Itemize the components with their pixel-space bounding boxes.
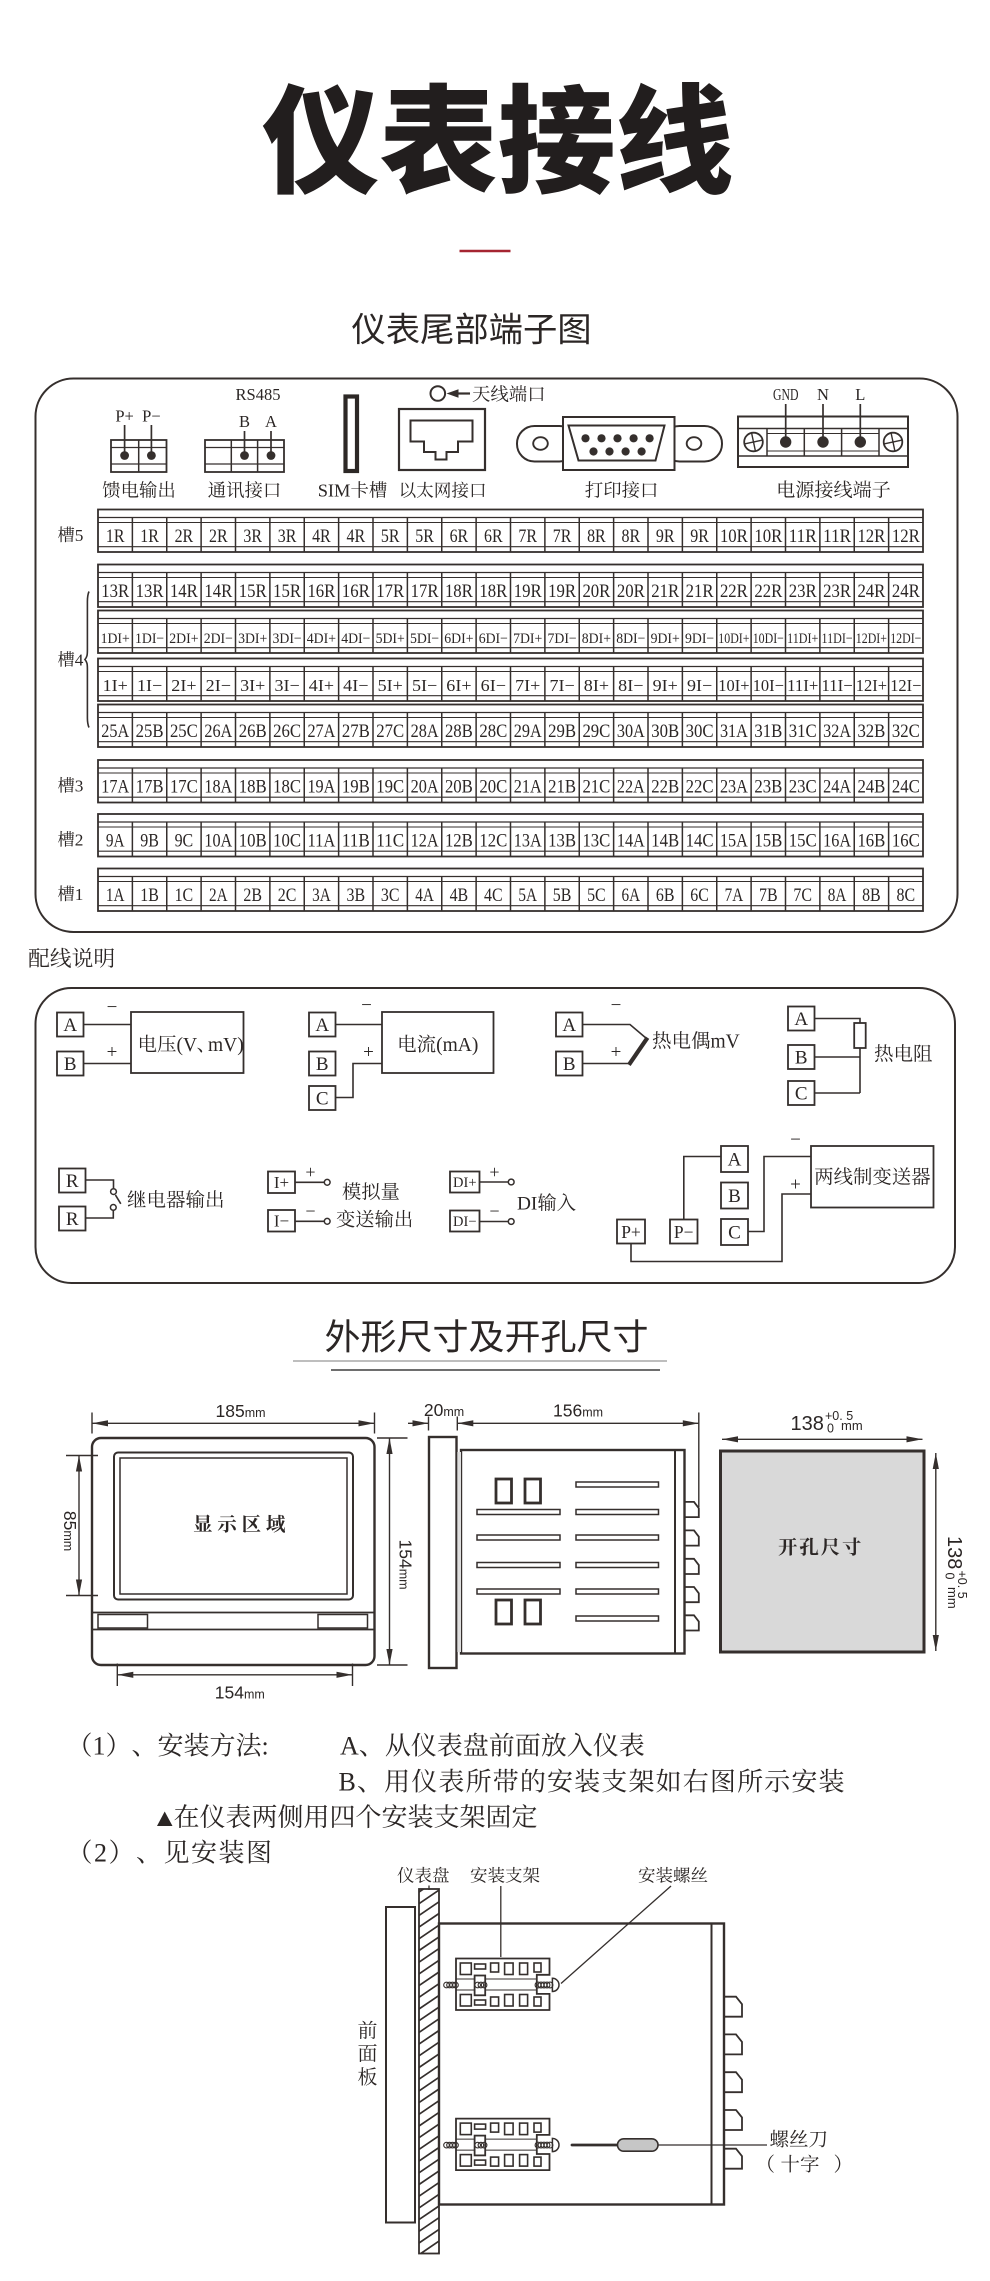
svg-text:7DI−: 7DI− (548, 631, 577, 647)
svg-text:15R: 15R (239, 582, 267, 602)
svg-text:21B: 21B (548, 778, 576, 798)
svg-text:24A: 24A (823, 778, 851, 798)
svg-text:B: B (563, 1054, 576, 1075)
svg-text:4DI−: 4DI− (341, 631, 370, 647)
svg-text:R: R (66, 1209, 79, 1230)
svg-text:19B: 19B (342, 778, 370, 798)
svg-text:1: 1 (75, 885, 84, 904)
svg-text:3DI+: 3DI+ (238, 631, 267, 647)
svg-text:10R: 10R (754, 527, 782, 547)
svg-text:N: N (817, 385, 829, 404)
svg-text:17B: 17B (136, 778, 164, 798)
svg-text:3R: 3R (278, 527, 297, 547)
svg-text:22B: 22B (651, 778, 679, 798)
svg-text:13A: 13A (514, 832, 542, 852)
svg-text:16A: 16A (823, 832, 851, 852)
svg-text:28C: 28C (479, 722, 507, 742)
svg-text:(mA): (mA) (436, 1035, 478, 1056)
svg-text:P+: P+ (621, 1222, 641, 1242)
svg-text:11R: 11R (789, 527, 818, 547)
svg-text:28B: 28B (445, 722, 473, 742)
svg-text:32C: 32C (892, 722, 920, 742)
svg-text:B: B (239, 412, 250, 431)
svg-text:2A: 2A (209, 886, 228, 906)
svg-text:1DI+: 1DI+ (101, 631, 130, 647)
svg-text:9I−: 9I− (687, 676, 712, 695)
svg-text:1I+: 1I+ (103, 676, 128, 695)
svg-text:23A: 23A (720, 778, 748, 798)
svg-text:16B: 16B (857, 832, 885, 852)
svg-text:4: 4 (75, 651, 84, 670)
svg-text:5B: 5B (553, 886, 572, 906)
svg-text:P+: P+ (115, 407, 133, 426)
svg-text:−: − (489, 1201, 499, 1221)
svg-text:31B: 31B (754, 722, 782, 742)
svg-text:6DI+: 6DI+ (444, 631, 473, 647)
svg-text:11DI+: 11DI+ (787, 631, 818, 647)
svg-text:31C: 31C (789, 722, 817, 742)
svg-text:5A: 5A (518, 886, 537, 906)
svg-text:1I−: 1I− (137, 676, 162, 695)
svg-text:26C: 26C (273, 722, 301, 742)
svg-text:14C: 14C (686, 832, 714, 852)
svg-text:5R: 5R (381, 527, 400, 547)
svg-text:19R: 19R (548, 582, 576, 602)
svg-text:4C: 4C (484, 886, 503, 906)
svg-text:12I+: 12I+ (856, 676, 887, 695)
svg-text:0: 0 (943, 1573, 957, 1580)
svg-text:2: 2 (75, 830, 84, 849)
svg-text:12I−: 12I− (890, 676, 921, 695)
svg-text:15R: 15R (273, 582, 301, 602)
svg-text:5I−: 5I− (412, 676, 437, 695)
svg-text:14B: 14B (651, 832, 679, 852)
svg-text:1R: 1R (140, 527, 159, 547)
svg-text:SIM: SIM (318, 481, 351, 501)
svg-text:A: A (562, 1015, 576, 1036)
svg-text:21C: 21C (582, 778, 610, 798)
svg-text:28A: 28A (411, 722, 439, 742)
svg-text:24C: 24C (892, 778, 920, 798)
svg-text:17R: 17R (376, 582, 404, 602)
svg-text:21R: 21R (651, 582, 679, 602)
svg-text:13R: 13R (136, 582, 164, 602)
svg-text:DI: DI (517, 1194, 537, 1215)
svg-text:A: A (265, 412, 277, 431)
svg-text:mm: mm (945, 1587, 960, 1609)
svg-text:10DI−: 10DI− (753, 631, 784, 647)
svg-text:4I−: 4I− (343, 676, 368, 695)
svg-text:24R: 24R (857, 582, 885, 602)
svg-text:32B: 32B (857, 722, 885, 742)
svg-text:18R: 18R (479, 582, 507, 602)
svg-text:10DI+: 10DI+ (718, 631, 749, 647)
svg-text:15A: 15A (720, 832, 748, 852)
svg-text:3A: 3A (312, 886, 331, 906)
svg-text:2DI+: 2DI+ (169, 631, 198, 647)
svg-text:7I+: 7I+ (515, 676, 540, 695)
svg-text:0: 0 (827, 1422, 834, 1436)
svg-text:B: B (795, 1048, 808, 1069)
svg-text:30B: 30B (651, 722, 679, 742)
svg-text::: : (262, 1732, 269, 1761)
svg-text:20R: 20R (617, 582, 645, 602)
svg-text:−: − (107, 997, 118, 1018)
svg-text:138: 138 (791, 1413, 824, 1435)
svg-text:29C: 29C (582, 722, 610, 742)
svg-text:29B: 29B (548, 722, 576, 742)
svg-text:A: A (340, 1732, 359, 1761)
svg-text:5R: 5R (415, 527, 434, 547)
svg-text:+: + (489, 1162, 499, 1182)
svg-text:19A: 19A (307, 778, 335, 798)
svg-text:24B: 24B (857, 778, 885, 798)
svg-text:7C: 7C (793, 886, 812, 906)
svg-text:25A: 25A (101, 722, 129, 742)
svg-text:23B: 23B (754, 778, 782, 798)
svg-text:6C: 6C (690, 886, 709, 906)
svg-text:+: + (305, 1162, 315, 1182)
svg-text:−: − (790, 1130, 801, 1151)
svg-text:19R: 19R (514, 582, 542, 602)
svg-text:10B: 10B (239, 832, 267, 852)
svg-text:9C: 9C (175, 832, 194, 852)
svg-text:20R: 20R (582, 582, 610, 602)
svg-text:30C: 30C (686, 722, 714, 742)
svg-text:18C: 18C (273, 778, 301, 798)
svg-text:1DI−: 1DI− (135, 631, 164, 647)
svg-text:29A: 29A (514, 722, 542, 742)
svg-text:+: + (363, 1042, 374, 1063)
svg-text:138: 138 (943, 1536, 965, 1569)
svg-text:23R: 23R (789, 582, 817, 602)
svg-text:23C: 23C (789, 778, 817, 798)
svg-text:2R: 2R (175, 527, 194, 547)
svg-text:−: − (361, 995, 372, 1016)
svg-text:1: 1 (93, 1732, 106, 1761)
svg-text:GND: GND (773, 385, 799, 404)
svg-text:10I+: 10I+ (718, 676, 749, 695)
svg-text:15C: 15C (789, 832, 817, 852)
svg-text:3I−: 3I− (275, 676, 300, 695)
svg-text:11I+: 11I+ (787, 676, 818, 695)
svg-text:2B: 2B (243, 886, 262, 906)
svg-text:3C: 3C (381, 886, 400, 906)
svg-text:+: + (611, 1042, 622, 1063)
svg-text:11I−: 11I− (822, 676, 853, 695)
svg-text:20B: 20B (445, 778, 473, 798)
svg-text:12R: 12R (857, 527, 885, 547)
svg-text:9B: 9B (140, 832, 159, 852)
svg-text:5DI−: 5DI− (410, 631, 439, 647)
svg-text:6I−: 6I− (481, 676, 506, 695)
svg-text:mV: mV (711, 1032, 740, 1053)
svg-text:6R: 6R (450, 527, 469, 547)
svg-text:+: + (107, 1042, 118, 1063)
svg-text:20C: 20C (479, 778, 507, 798)
svg-text:6DI−: 6DI− (479, 631, 508, 647)
svg-text:5C: 5C (587, 886, 606, 906)
svg-text:13B: 13B (548, 832, 576, 852)
svg-text:1A: 1A (106, 886, 125, 906)
svg-text:17C: 17C (170, 778, 198, 798)
svg-text:12DI+: 12DI+ (856, 631, 887, 647)
svg-text:7R: 7R (518, 527, 537, 547)
svg-text:10C: 10C (273, 832, 301, 852)
svg-text:4B: 4B (450, 886, 469, 906)
svg-text:+: + (790, 1175, 801, 1196)
svg-text:14R: 14R (170, 582, 198, 602)
svg-text:B: B (728, 1186, 741, 1207)
svg-text:3: 3 (75, 776, 84, 795)
svg-text:2: 2 (94, 1839, 109, 1868)
svg-text:8DI+: 8DI+ (582, 631, 611, 647)
svg-text:9R: 9R (656, 527, 675, 547)
svg-text:6R: 6R (484, 527, 503, 547)
svg-text:2DI−: 2DI− (204, 631, 233, 647)
svg-text:27A: 27A (307, 722, 335, 742)
svg-text:5I+: 5I+ (378, 676, 403, 695)
svg-text:9A: 9A (106, 832, 125, 852)
svg-text:7A: 7A (725, 886, 744, 906)
svg-text:DI+: DI+ (453, 1175, 476, 1191)
svg-text:5: 5 (75, 526, 84, 545)
svg-text:8DI−: 8DI− (616, 631, 645, 647)
svg-text:27C: 27C (376, 722, 404, 742)
svg-text:C: C (795, 1084, 808, 1105)
svg-text:1C: 1C (175, 886, 194, 906)
svg-text:7DI+: 7DI+ (513, 631, 542, 647)
svg-text:6A: 6A (622, 886, 641, 906)
svg-text:10R: 10R (720, 527, 748, 547)
svg-text:13R: 13R (101, 582, 129, 602)
svg-text:13C: 13C (582, 832, 610, 852)
svg-text:30A: 30A (617, 722, 645, 742)
svg-text:11DI−: 11DI− (822, 631, 853, 647)
svg-text:6B: 6B (656, 886, 675, 906)
svg-text:25B: 25B (136, 722, 164, 742)
svg-text:B: B (339, 1768, 358, 1797)
svg-text:B: B (316, 1054, 329, 1075)
svg-text:22A: 22A (617, 778, 645, 798)
svg-text:A: A (728, 1150, 742, 1171)
svg-text:3R: 3R (243, 527, 262, 547)
svg-text:8B: 8B (862, 886, 881, 906)
svg-text:mm: mm (841, 1418, 863, 1433)
svg-text:4R: 4R (312, 527, 331, 547)
svg-text:6I+: 6I+ (446, 676, 471, 695)
svg-text:1R: 1R (106, 527, 125, 547)
svg-text:5DI+: 5DI+ (376, 631, 405, 647)
svg-text:7I−: 7I− (550, 676, 575, 695)
svg-text:9R: 9R (690, 527, 709, 547)
svg-text:20A: 20A (411, 778, 439, 798)
svg-text:RS485: RS485 (236, 385, 281, 404)
svg-text:25C: 25C (170, 722, 198, 742)
svg-text:23R: 23R (823, 582, 851, 602)
svg-text:8C: 8C (897, 886, 916, 906)
svg-text:31A: 31A (720, 722, 748, 742)
svg-text:15B: 15B (754, 832, 782, 852)
svg-text:3DI−: 3DI− (273, 631, 302, 647)
svg-text:−: − (305, 1201, 315, 1221)
svg-text:C: C (728, 1223, 741, 1244)
svg-text:19C: 19C (376, 778, 404, 798)
svg-text:4A: 4A (415, 886, 434, 906)
svg-text:B: B (64, 1054, 77, 1075)
svg-text:3I+: 3I+ (240, 676, 265, 695)
svg-text:27B: 27B (342, 722, 370, 742)
svg-text:11B: 11B (342, 832, 370, 852)
svg-text:2I−: 2I− (206, 676, 231, 695)
svg-text:4R: 4R (347, 527, 366, 547)
svg-text:10A: 10A (204, 832, 232, 852)
svg-text:1B: 1B (140, 886, 159, 906)
svg-text:8I+: 8I+ (584, 676, 609, 695)
svg-text:11R: 11R (823, 527, 852, 547)
svg-text:2C: 2C (278, 886, 297, 906)
svg-text:11C: 11C (376, 832, 404, 852)
svg-text:14A: 14A (617, 832, 645, 852)
svg-text:18B: 18B (239, 778, 267, 798)
svg-text:4DI+: 4DI+ (307, 631, 336, 647)
svg-text:18R: 18R (445, 582, 473, 602)
svg-text:mV): mV) (208, 1035, 244, 1056)
svg-text:A: A (63, 1015, 77, 1036)
svg-text:8R: 8R (622, 527, 641, 547)
svg-text:16R: 16R (307, 582, 335, 602)
svg-text:12A: 12A (411, 832, 439, 852)
svg-text:P−: P− (674, 1222, 694, 1242)
svg-text:12DI−: 12DI− (890, 631, 921, 647)
svg-text:R: R (66, 1171, 79, 1192)
svg-text:22R: 22R (754, 582, 782, 602)
svg-text:22C: 22C (686, 778, 714, 798)
svg-text:21A: 21A (514, 778, 542, 798)
svg-text:26A: 26A (204, 722, 232, 742)
svg-text:11A: 11A (307, 832, 335, 852)
svg-text:21R: 21R (686, 582, 714, 602)
svg-text:10I−: 10I− (753, 676, 784, 695)
svg-text:12R: 12R (892, 527, 920, 547)
svg-text:(V: (V (177, 1035, 198, 1056)
svg-text:8A: 8A (828, 886, 847, 906)
svg-text:17A: 17A (101, 778, 129, 798)
svg-text:A: A (315, 1015, 329, 1036)
svg-text:DI−: DI− (453, 1214, 476, 1230)
svg-text:9DI+: 9DI+ (651, 631, 680, 647)
svg-text:7R: 7R (553, 527, 572, 547)
svg-text:16R: 16R (342, 582, 370, 602)
svg-text:24R: 24R (892, 582, 920, 602)
svg-text:18A: 18A (204, 778, 232, 798)
svg-text:17R: 17R (411, 582, 439, 602)
svg-text:12C: 12C (479, 832, 507, 852)
svg-text:I−: I− (274, 1212, 289, 1231)
svg-text:22R: 22R (720, 582, 748, 602)
svg-text:P−: P− (142, 407, 160, 426)
svg-text:14R: 14R (204, 582, 232, 602)
svg-text:8I−: 8I− (618, 676, 643, 695)
svg-text:9I+: 9I+ (653, 676, 678, 695)
svg-text:32A: 32A (823, 722, 851, 742)
svg-text:8R: 8R (587, 527, 606, 547)
svg-text:7B: 7B (759, 886, 778, 906)
svg-text:9DI−: 9DI− (685, 631, 714, 647)
svg-text:A: A (794, 1009, 808, 1030)
svg-text:4I+: 4I+ (309, 676, 334, 695)
svg-text:C: C (316, 1089, 329, 1110)
svg-text:16C: 16C (892, 832, 920, 852)
svg-text:3B: 3B (347, 886, 366, 906)
svg-text:L: L (855, 385, 865, 404)
svg-text:−: − (611, 995, 622, 1016)
svg-text:2R: 2R (209, 527, 228, 547)
svg-text:I+: I+ (274, 1173, 289, 1192)
svg-text:26B: 26B (239, 722, 267, 742)
svg-text:2I+: 2I+ (171, 676, 196, 695)
svg-text:12B: 12B (445, 832, 473, 852)
